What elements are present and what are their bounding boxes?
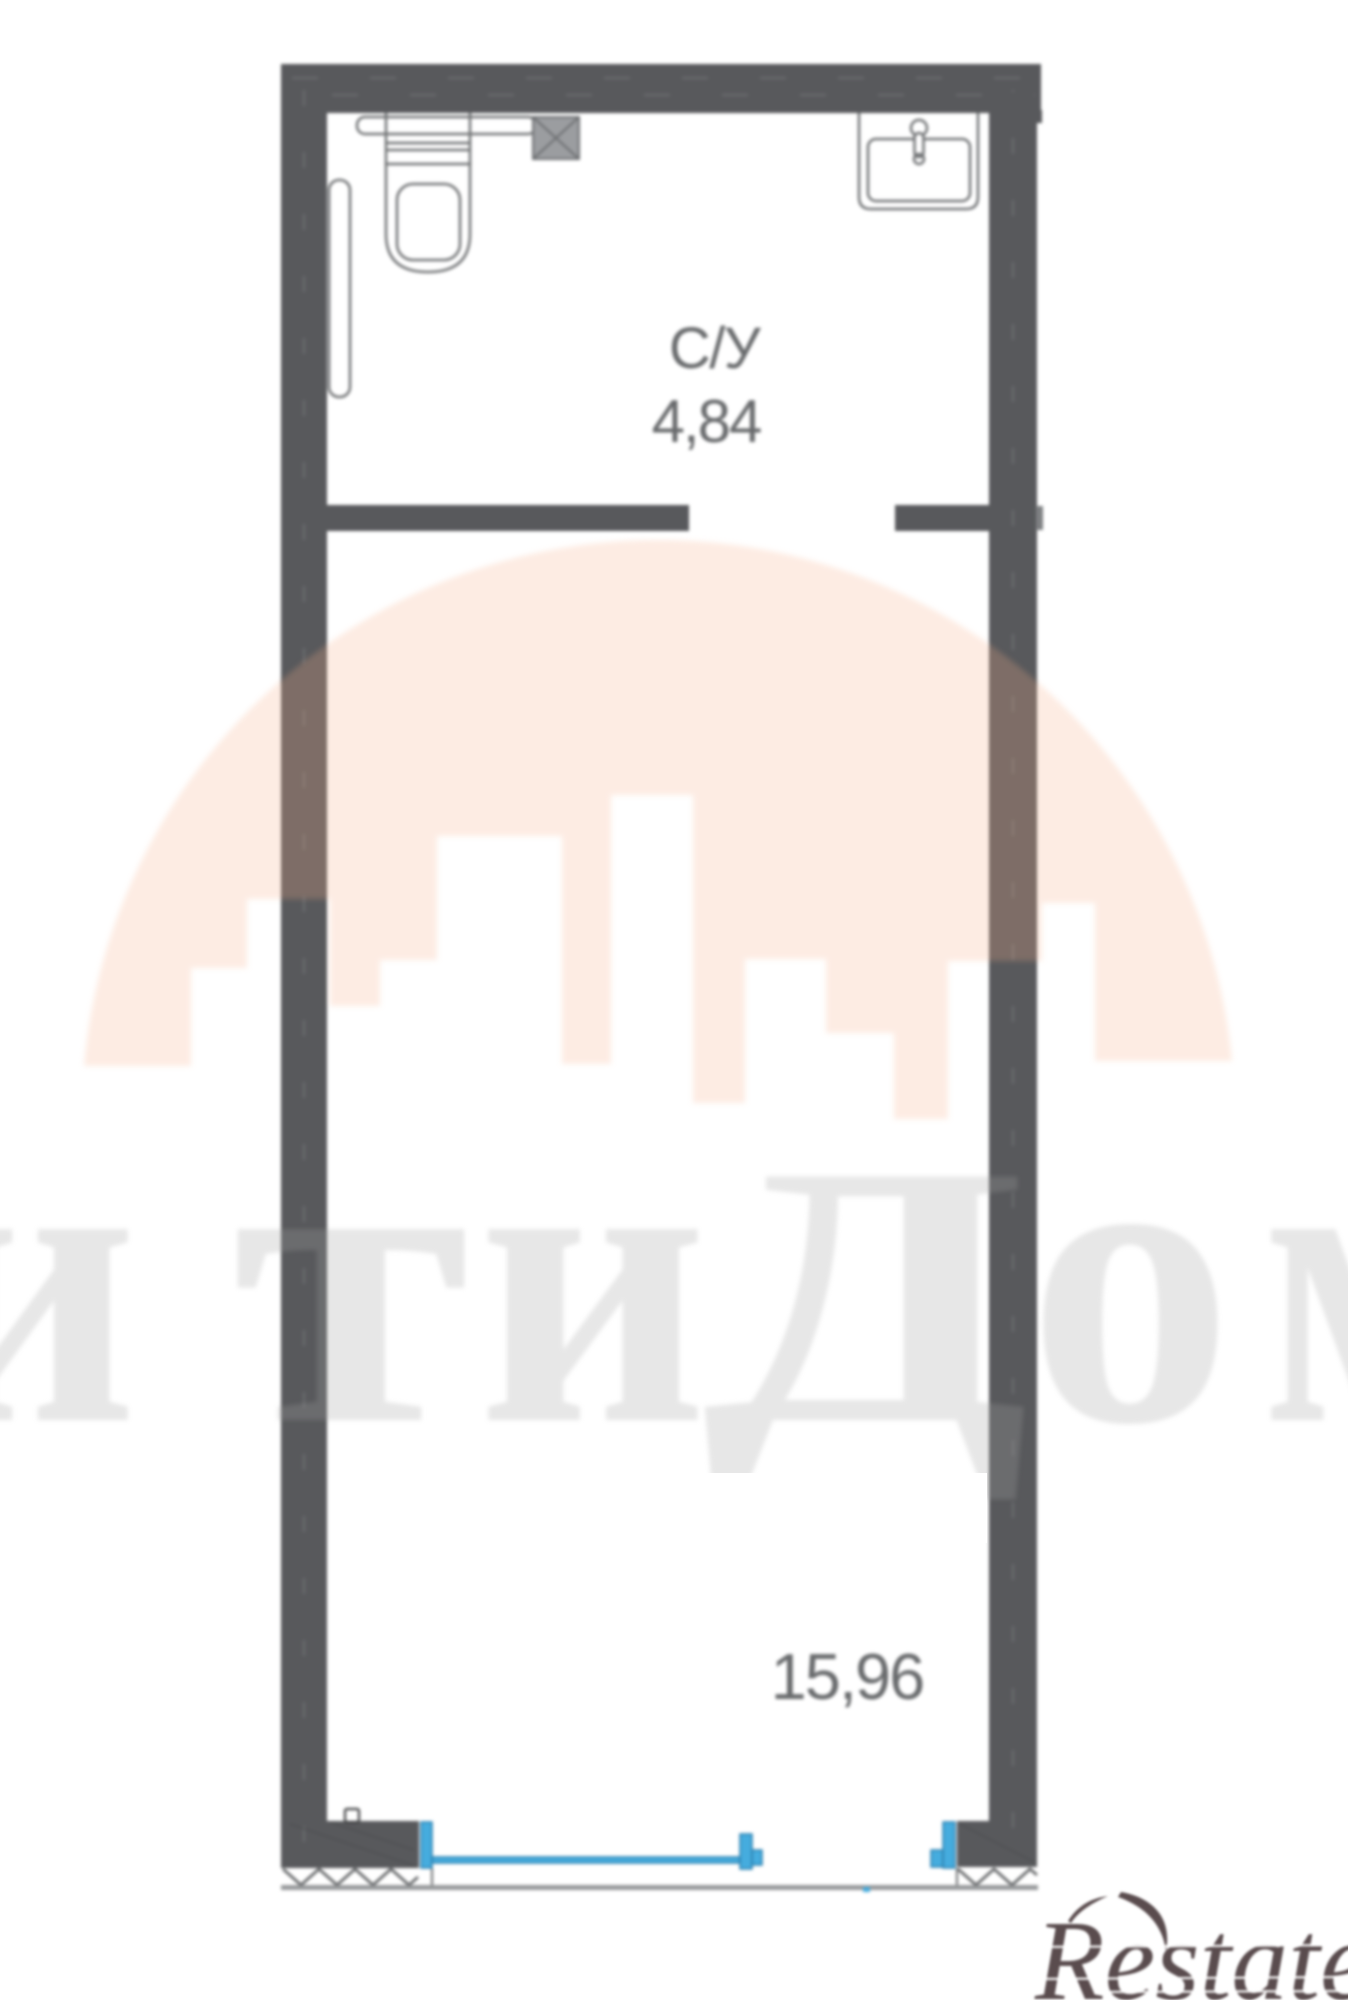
svg-text:С/У: С/У — [669, 316, 762, 381]
svg-text:Д: Д — [702, 1090, 1030, 1502]
svg-text:Restate: Restate — [1034, 1897, 1348, 2000]
svg-text:15,96: 15,96 — [771, 1640, 924, 1713]
svg-text:и: и — [0, 1050, 138, 1510]
svg-text:о: о — [1028, 1050, 1233, 1510]
svg-text:т: т — [232, 1050, 470, 1510]
svg-text:м: м — [1262, 1050, 1348, 1510]
svg-text:и: и — [478, 1050, 708, 1510]
svg-text:4,84: 4,84 — [652, 388, 761, 455]
